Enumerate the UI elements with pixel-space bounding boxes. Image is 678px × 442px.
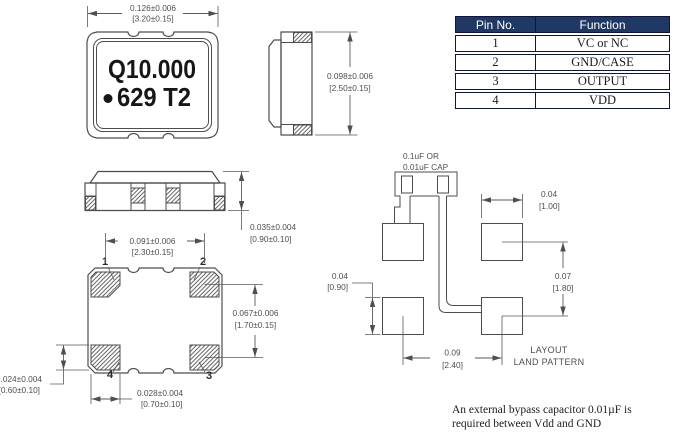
package-top-view: Q10.000 629 T2 0.126±0.006 [3.20±0.15] (87, 3, 218, 138)
base-pad-left (86, 197, 96, 211)
dim-land-pitch-x-mm: [2.40] (442, 360, 463, 370)
header-pin-no: Pin No. (455, 16, 536, 33)
marking-frequency: Q10.000 (108, 54, 196, 84)
datasheet-drawing: Q10.000 629 T2 0.126±0.006 [3.20±0.15] 0… (0, 0, 678, 442)
pin-number-cell: 3 (455, 73, 536, 90)
pin-function-cell: VC or NC (536, 35, 670, 52)
dimension-pad-width: 0.028±0.004 [0.70±0.10] (91, 374, 183, 409)
dim-land-pitch-y-inch: 0.07 (555, 271, 572, 281)
side-pad-top (294, 33, 312, 43)
cap-terminal-right (438, 176, 449, 193)
side-lid (269, 40, 281, 127)
dim-body-width-mm: [3.20±0.15] (132, 14, 173, 24)
note-line2: required between Vdd and GND (452, 418, 601, 430)
dim-pad-width-mm: [0.70±0.10] (141, 399, 182, 409)
pad-1 (91, 272, 120, 297)
base-pad-right (215, 197, 225, 211)
dimension-land-pad-width: 0.04 [1.00] (482, 189, 560, 218)
pin-function-table: Pin No. Function 1 VC or NC 2 GND/CASE 3… (455, 14, 670, 111)
pin-label-4: 4 (107, 369, 114, 381)
trace-to-pad-bottomright (439, 196, 482, 313)
package-base-side-view: 0.035±0.004 [0.90±0.10] (85, 172, 296, 245)
dim-land-pad-width-inch: 0.04 (541, 189, 558, 199)
land-pattern-title-line1: LAYOUT (530, 345, 567, 355)
land-pad-topleft (383, 224, 424, 261)
dim-body-height-mm: [2.50±0.15] (329, 83, 370, 93)
dim-body-width-inch: 0.126±0.006 (130, 3, 176, 13)
base-castellation-1 (131, 188, 145, 203)
package-side-view: 0.098±0.006 [2.50±0.15] (269, 32, 373, 135)
dim-land-pad-height-inch: 0.04 (332, 271, 349, 281)
dim-base-height-mm: [0.90±0.10] (250, 234, 291, 244)
pin-label-3: 3 (206, 370, 212, 382)
cap-label-line1: 0.1uF OR (403, 151, 439, 161)
dim-pad-pitch-x-mm: [2.30±0.15] (132, 247, 173, 257)
marking-dot (104, 94, 113, 103)
trace-to-pad-topleft (395, 196, 411, 224)
dim-pad-pitch-y-inch: 0.067±0.006 (232, 308, 278, 318)
package-bottom-view: 1 2 4 3 0.091±0.006 [2.30±0.15] 0.067±0.… (0, 233, 279, 409)
land-pattern-title-line2: LAND PATTERN (514, 357, 585, 367)
dimension-base-height: 0.035±0.004 [0.90±0.10] (223, 172, 296, 245)
side-pad-bottom (294, 125, 312, 135)
bypass-capacitor-note: An external bypass capacitor 0.01µF is r… (452, 403, 677, 431)
table-row: 1 VC or NC (455, 35, 670, 52)
table-row: 2 GND/CASE (455, 54, 670, 71)
dimension-body-width: 0.126±0.006 [3.20±0.15] (88, 3, 219, 27)
table-header-row: Pin No. Function (455, 16, 670, 33)
pin-function-cell: VDD (536, 92, 670, 109)
bypass-capacitor (395, 172, 482, 313)
header-function: Function (536, 16, 670, 33)
base-lid (90, 172, 220, 184)
pin-label-2: 2 (200, 256, 206, 268)
dim-land-pitch-y-mm: [1.80] (553, 283, 574, 293)
dim-pad-height-inch: 0.024±0.004 (0, 374, 42, 384)
table-row: 4 VDD (455, 92, 670, 109)
dimension-land-pitch-x: 0.09 [2.40] (403, 316, 502, 370)
pin-label-1: 1 (102, 256, 108, 268)
pin-number-cell: 1 (455, 35, 536, 52)
pin-number-cell: 2 (455, 54, 536, 71)
dim-land-pad-height-mm: [0.90] (327, 282, 348, 292)
dim-body-height-inch: 0.098±0.006 (327, 71, 373, 81)
dimension-body-height: 0.098±0.006 [2.50±0.15] (315, 32, 373, 135)
pad-4 (91, 345, 120, 370)
dim-pad-width-inch: 0.028±0.004 (137, 388, 183, 398)
dim-land-pad-width-mm: [1.00] (539, 201, 560, 211)
side-body (281, 32, 312, 135)
dim-pad-pitch-y-mm: [1.70±0.15] (235, 320, 276, 330)
dim-pad-pitch-x-inch: 0.091±0.006 (129, 236, 175, 246)
note-line1: An external bypass capacitor 0.01µF is (452, 404, 632, 416)
table-row: 3 OUTPUT (455, 73, 670, 90)
dimension-land-pitch-y: 0.07 [1.80] (502, 242, 573, 316)
pin-function-cell: OUTPUT (536, 73, 670, 90)
dim-base-height-inch: 0.035±0.004 (250, 222, 296, 232)
pin-function-cell: GND/CASE (536, 54, 670, 71)
dimension-pad-height: 0.024±0.004 [0.60±0.10] (0, 345, 89, 395)
base-body (85, 183, 225, 211)
pin-number-cell: 4 (455, 92, 536, 109)
base-castellation-2 (166, 188, 180, 203)
land-pattern-view: 0.1uF OR 0.01uF CAP 0.04 [1.00] 0.07 [1.… (327, 151, 584, 370)
dimension-land-pad-height: 0.04 [0.90] (327, 271, 380, 335)
cap-label-line2: 0.01uF CAP (403, 162, 449, 172)
dim-land-pitch-x-inch: 0.09 (444, 348, 461, 358)
marking-datecode: 629 T2 (117, 82, 191, 112)
cap-terminal-left (402, 176, 413, 193)
dimension-pad-pitch-x: 0.091±0.006 [2.30±0.15] (106, 233, 205, 263)
dim-pad-height-mm: [0.60±0.10] (0, 385, 40, 395)
